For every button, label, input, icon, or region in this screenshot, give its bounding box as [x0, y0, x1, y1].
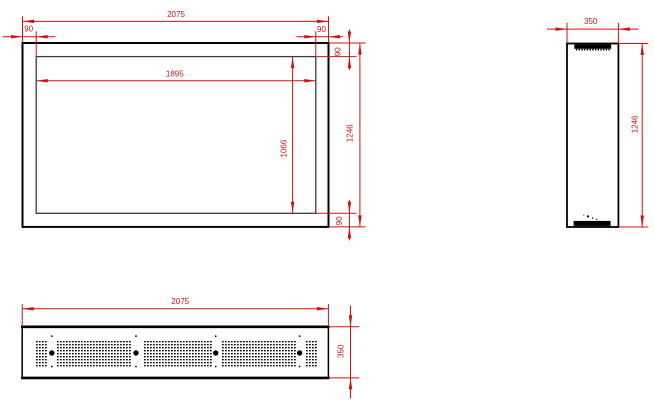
svg-text:350: 350	[584, 17, 598, 26]
svg-text:90: 90	[333, 47, 342, 56]
svg-text:2075: 2075	[171, 297, 189, 306]
svg-text:1066: 1066	[280, 139, 289, 157]
svg-text:90: 90	[24, 25, 33, 34]
svg-text:1246: 1246	[630, 115, 639, 133]
svg-text:1246: 1246	[345, 124, 354, 142]
svg-text:2075: 2075	[167, 10, 185, 19]
svg-text:90: 90	[317, 25, 326, 34]
svg-text:1895: 1895	[166, 69, 184, 78]
svg-text:90: 90	[335, 216, 344, 225]
svg-text:350: 350	[336, 344, 345, 358]
